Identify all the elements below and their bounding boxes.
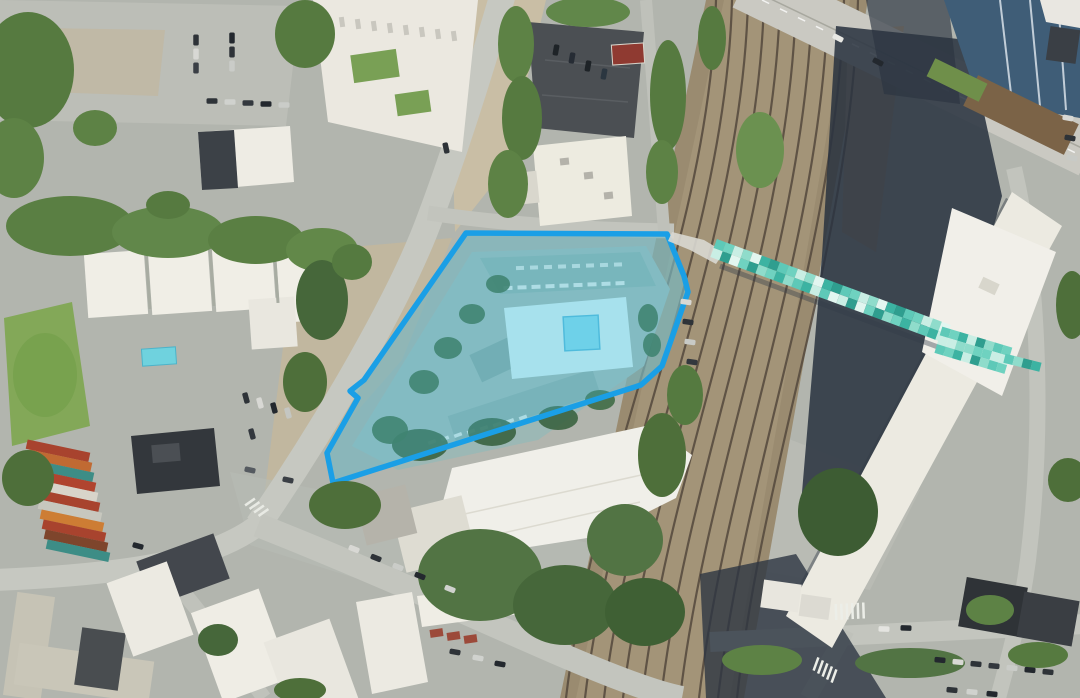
tree [198, 624, 238, 656]
tree [605, 578, 685, 646]
tree [275, 0, 335, 68]
tree [966, 595, 1014, 625]
aerial-map-view [0, 0, 1080, 698]
roof-courtyard [395, 90, 432, 117]
tree [798, 468, 878, 556]
building-townhouse-block [248, 296, 297, 349]
tree [283, 352, 327, 412]
tree [698, 6, 726, 70]
tree [587, 504, 663, 576]
car [279, 102, 290, 108]
building-dark-b [1016, 591, 1079, 646]
tree [650, 40, 686, 150]
car [193, 63, 199, 74]
tree [638, 413, 686, 497]
tree [332, 244, 372, 280]
building-townhouse [84, 250, 148, 318]
car [229, 33, 235, 44]
car [1006, 665, 1017, 671]
tree [309, 481, 381, 529]
car [193, 49, 199, 60]
hvac-unit [604, 192, 614, 200]
car [988, 663, 999, 669]
tree [646, 140, 678, 204]
car [261, 101, 272, 107]
car [193, 35, 199, 46]
tree [513, 565, 617, 645]
parking-lot-dark [528, 22, 644, 138]
building-small-dark-wing [198, 130, 238, 190]
car [229, 47, 235, 58]
tree [1008, 642, 1068, 668]
car [878, 626, 889, 632]
car [966, 689, 977, 695]
tree [855, 648, 965, 678]
car [934, 657, 945, 663]
building-industrial-top [533, 136, 632, 226]
swimming-pool [141, 347, 176, 366]
tree [722, 645, 802, 675]
tower-rooftop-unit [1046, 26, 1080, 64]
tree [488, 150, 528, 218]
car [229, 61, 235, 72]
roof-patch [151, 443, 180, 463]
tree [667, 365, 703, 425]
car [243, 100, 254, 106]
car [900, 625, 911, 631]
tree [736, 112, 784, 188]
car [970, 661, 981, 667]
tree [73, 110, 117, 146]
tree [498, 6, 534, 82]
car [1024, 667, 1035, 673]
car [1042, 669, 1053, 675]
car [207, 98, 218, 104]
car [946, 687, 957, 693]
grass-texture [13, 333, 77, 417]
tree [502, 76, 542, 160]
building-white-near-crossing [799, 594, 832, 620]
building-red-roof [611, 43, 644, 65]
car [986, 691, 997, 697]
tree [146, 191, 190, 219]
building-white-near-crossing [760, 579, 802, 612]
tree [2, 450, 54, 506]
building-dark-small [74, 627, 126, 691]
hvac-unit [560, 158, 570, 166]
hvac-unit [584, 172, 594, 180]
car [225, 99, 236, 105]
map-canvas [0, 0, 1080, 698]
car [952, 659, 963, 665]
